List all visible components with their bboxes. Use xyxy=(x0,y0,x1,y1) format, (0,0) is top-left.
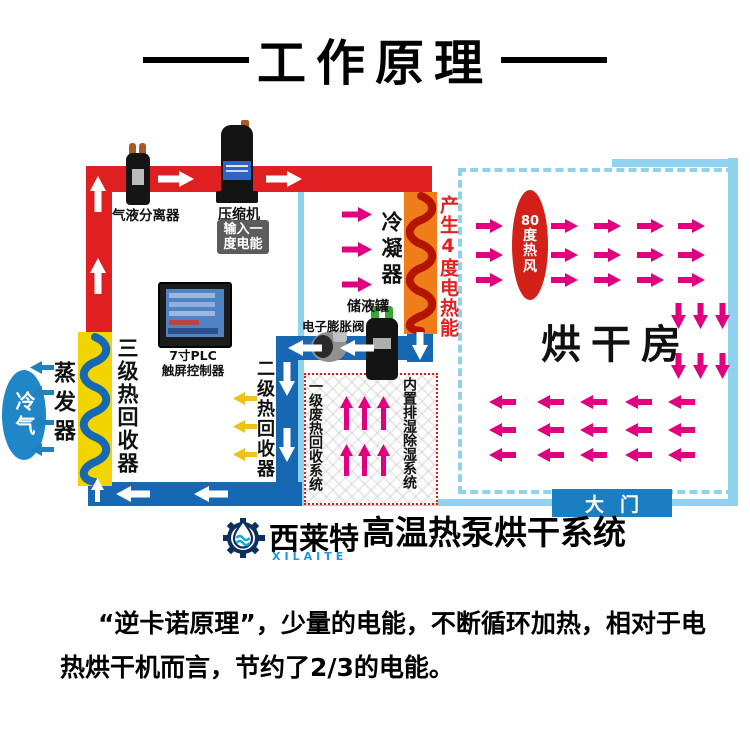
flow-arrow-right xyxy=(551,248,578,262)
flow-arrow-down xyxy=(715,303,730,329)
stage3-recovery-label: 三级热回收器 xyxy=(116,337,137,475)
waste-heat-recovery-box xyxy=(304,373,438,505)
condenser-coil xyxy=(404,192,437,334)
flow-arrow-left xyxy=(668,423,695,437)
flow-arrow-down xyxy=(412,332,428,360)
flow-arrow-right xyxy=(476,248,503,262)
title-row: 工作原理 xyxy=(0,24,750,95)
flow-arrow-right xyxy=(158,171,194,187)
flow-arrow-left xyxy=(625,448,652,462)
flow-arrow-right xyxy=(594,248,621,262)
evaporator-label: 蒸发器 xyxy=(51,361,73,448)
gas-liquid-separator-icon xyxy=(126,143,150,207)
valve-label: 电子膨胀阀 xyxy=(302,316,365,335)
flow-arrow-left xyxy=(537,395,564,409)
stage1-recovery-label: 一级废热回收系统 xyxy=(308,379,322,491)
brand-name-en: XILAITE xyxy=(272,550,347,563)
flow-arrow-left xyxy=(625,423,652,437)
title-left-dash xyxy=(143,57,249,63)
flow-arrow-left xyxy=(288,340,322,356)
flow-arrow-right xyxy=(342,242,372,257)
separator-label: 气液分离器 xyxy=(112,204,180,224)
flow-arrow-left xyxy=(233,392,257,405)
flow-arrow-left xyxy=(30,416,54,429)
flow-arrow-left xyxy=(30,386,54,399)
flow-arrow-right xyxy=(637,273,664,287)
flow-arrow-left xyxy=(233,420,257,433)
flow-arrow-right xyxy=(637,219,664,233)
badge-line: 输入一 xyxy=(217,222,269,237)
plc-label-line: 7寸PLC xyxy=(150,348,236,363)
drying-room-label: 烘干房 xyxy=(541,312,691,370)
flow-arrow-down xyxy=(279,362,295,396)
flow-arrow-left xyxy=(537,448,564,462)
flow-arrow-right xyxy=(678,273,705,287)
flow-arrow-right xyxy=(678,248,705,262)
flow-arrow-up xyxy=(358,396,371,430)
flow-arrow-left xyxy=(340,340,374,356)
flow-arrow-down xyxy=(671,353,686,379)
flow-arrow-left xyxy=(625,395,652,409)
flow-arrow-right xyxy=(342,277,372,292)
flow-arrow-left xyxy=(580,448,607,462)
flow-arrow-down xyxy=(715,353,730,379)
flow-arrow-right xyxy=(594,273,621,287)
brand-product-name: 高温热泵烘干系统 xyxy=(362,506,626,554)
hot-wind-line: 风 xyxy=(523,260,537,275)
description-line: 热烘干机而言，节约了2/3的电能。 xyxy=(60,646,710,690)
tank-label: 储液罐 xyxy=(347,296,389,316)
room-border-left-top xyxy=(298,178,304,336)
flow-arrow-down xyxy=(693,303,708,329)
badge-line: 度电能 xyxy=(217,237,269,252)
flow-arrow-up xyxy=(340,444,353,476)
dehumidifier-label: 内置排湿除湿系统 xyxy=(402,377,416,489)
flow-arrow-left xyxy=(580,423,607,437)
flow-arrow-left xyxy=(116,486,150,502)
flow-arrow-left xyxy=(668,395,695,409)
flow-arrow-left xyxy=(489,448,516,462)
flow-arrow-right xyxy=(266,171,302,187)
flow-arrow-up xyxy=(340,396,353,430)
flow-arrow-left xyxy=(30,361,54,374)
description-paragraph: “逆卡诺原理”，少量的电能，不断循环加热，相对于电 热烘干机而言，节约了2/3的… xyxy=(60,602,710,690)
title-right-dash xyxy=(501,57,607,63)
flow-arrow-right xyxy=(678,219,705,233)
stage2-recovery-label: 二级热回收器 xyxy=(255,359,273,479)
flow-arrow-left xyxy=(194,486,228,502)
plc-label: 7寸PLC 触屏控制器 xyxy=(150,348,236,378)
room-border-top xyxy=(612,159,738,167)
condenser-label: 冷凝器 xyxy=(380,211,401,289)
hot-wind-line: 热 xyxy=(523,244,537,259)
flow-arrow-left xyxy=(489,423,516,437)
flow-arrow-up xyxy=(358,444,371,476)
flow-arrow-up xyxy=(90,258,106,294)
flow-arrow-right xyxy=(476,273,503,287)
plc-label-line: 触屏控制器 xyxy=(150,363,236,378)
plc-controller-icon xyxy=(158,282,232,348)
stage3-recovery-coil xyxy=(78,332,112,486)
xilaite-logo-icon xyxy=(221,510,267,564)
flow-arrow-up xyxy=(90,176,106,212)
heat-output-label: 产生4度电热能 xyxy=(438,195,457,338)
flow-arrow-up xyxy=(377,444,390,476)
flow-arrow-right xyxy=(637,248,664,262)
flow-arrow-left xyxy=(668,448,695,462)
flow-arrow-left xyxy=(580,395,607,409)
compressor-icon xyxy=(220,123,254,203)
compressor-energy-badge: 输入一 度电能 xyxy=(217,220,269,254)
flow-arrow-left xyxy=(537,423,564,437)
flow-arrow-up xyxy=(377,396,390,430)
flow-arrow-down xyxy=(671,303,686,329)
page-title: 工作原理 xyxy=(257,24,493,95)
hot-wind-badge: 80 度 热 风 xyxy=(512,190,548,300)
flow-arrow-right xyxy=(594,219,621,233)
flow-arrow-right xyxy=(551,219,578,233)
flow-arrow-right xyxy=(342,207,372,222)
flow-arrow-down xyxy=(693,353,708,379)
flow-arrow-left xyxy=(233,448,257,461)
heat-pump-principle-diagram: 工作原理 xyxy=(0,0,750,750)
flow-arrow-down xyxy=(279,428,295,462)
flow-arrow-up xyxy=(91,478,104,502)
description-line: “逆卡诺原理”，少量的电能，不断循环加热，相对于电 xyxy=(60,602,710,646)
flow-arrow-left xyxy=(30,443,54,456)
flow-arrow-right xyxy=(476,219,503,233)
flow-arrow-left xyxy=(489,395,516,409)
flow-arrow-right xyxy=(551,273,578,287)
